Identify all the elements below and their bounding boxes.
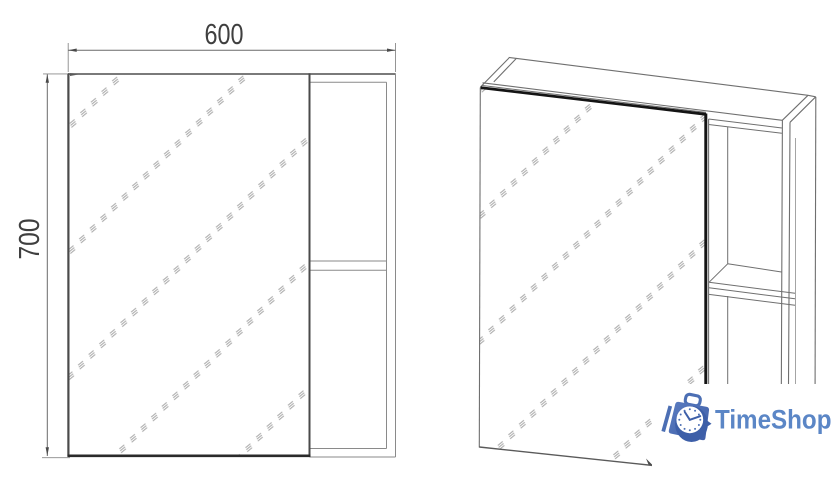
svg-text:600: 600 [205,19,244,51]
svg-text:TimeShop: TimeShop [715,405,832,435]
svg-text:700: 700 [14,219,46,260]
